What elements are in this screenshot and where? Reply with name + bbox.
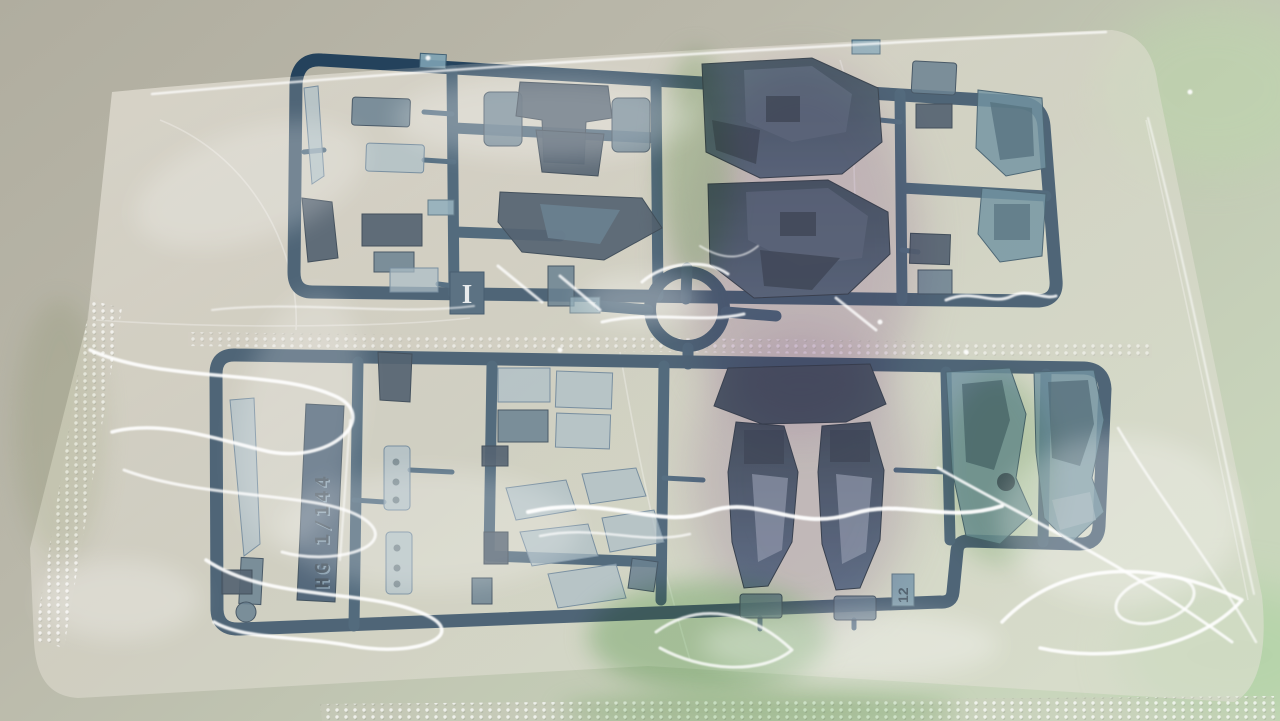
- green-tint-left-edge: [15, 300, 105, 560]
- green-tint-center-top: [660, 50, 732, 280]
- photo-canvas: I: [0, 0, 1280, 721]
- sheen-blob: [40, 560, 200, 640]
- sheen-blob: [395, 76, 695, 160]
- sheen-blob: [280, 470, 580, 590]
